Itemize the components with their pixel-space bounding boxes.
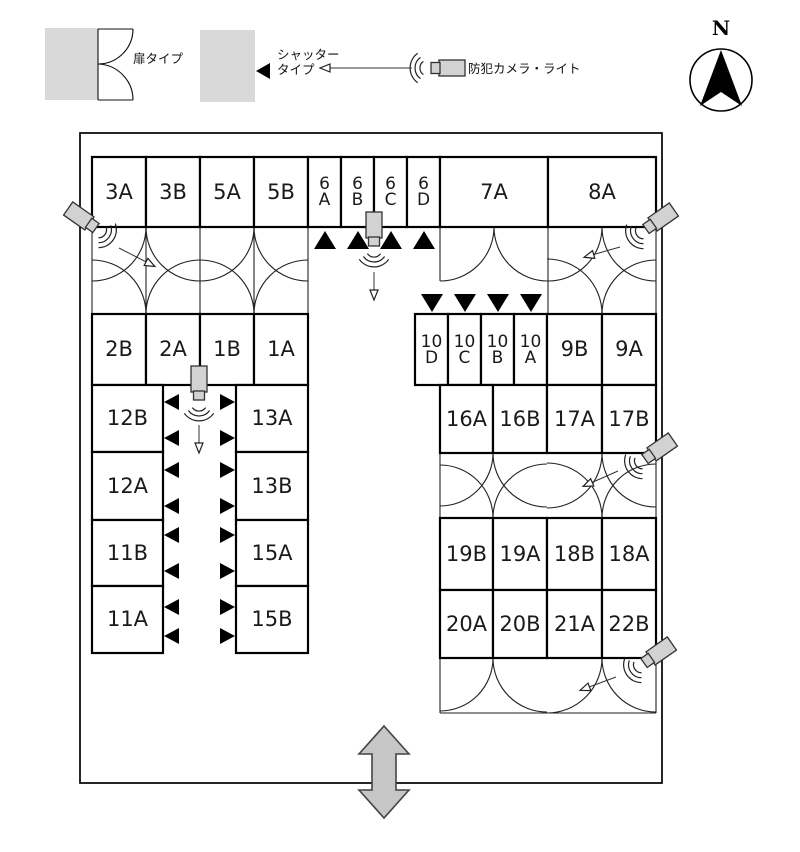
- shutter-triangle-down-icon: [520, 294, 542, 312]
- unit-rect-20B: [493, 590, 547, 658]
- unit-rect-2B: [92, 314, 146, 385]
- unit-rect-22B: [602, 590, 656, 658]
- unit-rect-15B: [236, 586, 308, 653]
- shutter-triangle-left-icon: [164, 498, 179, 514]
- unit-rect-6D: [407, 157, 440, 227]
- camera-view-arrow: [585, 247, 620, 257]
- camera-view-arrow: [584, 471, 618, 486]
- shutter-triangle-left-icon: [164, 527, 179, 543]
- door-type-icon: [45, 28, 133, 100]
- shutter-triangle-left-icon: [164, 394, 179, 410]
- floor-plan-svg: [0, 0, 800, 852]
- shutter-triangle-left-icon: [164, 563, 179, 579]
- entrance-arrow-icon: [359, 726, 409, 818]
- shutter-triangle-down-icon: [421, 294, 443, 312]
- shutter-triangle-right-icon: [220, 628, 235, 644]
- shutter-triangle-right-icon: [220, 394, 235, 410]
- unit-rect-5A: [200, 157, 254, 227]
- shutter-triangle-up-icon: [413, 231, 435, 249]
- unit-rect-1A: [254, 314, 308, 385]
- unit-rect-10C: [448, 314, 481, 385]
- unit-rect-18A: [602, 518, 656, 590]
- shutter-triangle-right-icon: [220, 498, 235, 514]
- shutter-triangle-left-icon: [164, 599, 179, 615]
- unit-rect-11B: [92, 520, 163, 586]
- shutter-triangle-left-icon: [164, 462, 179, 478]
- unit-rect-19B: [440, 518, 493, 590]
- shutter-triangle-right-icon: [220, 599, 235, 615]
- shutter-triangle-left-icon: [164, 628, 179, 644]
- unit-rect-15A: [236, 520, 308, 586]
- floor-plan-page: 扉タイプ シャッター タイプ 防犯カメラ・ライト N 3A3B5A5B6 A6 …: [0, 0, 800, 852]
- unit-rect-6A: [308, 157, 341, 227]
- unit-rect-8A: [548, 157, 656, 227]
- unit-rect-9A: [602, 314, 656, 385]
- unit-rect-11A: [92, 586, 163, 653]
- unit-rect-18B: [547, 518, 602, 590]
- compass-icon: [690, 49, 752, 111]
- unit-rect-3B: [146, 157, 200, 227]
- unit-rect-16B: [493, 385, 547, 453]
- unit-rect-10B: [481, 314, 514, 385]
- unit-rect-10D: [415, 314, 448, 385]
- shutter-triangle-down-icon: [454, 294, 476, 312]
- unit-rect-13B: [236, 452, 308, 520]
- camera-view-arrow: [119, 248, 154, 266]
- unit-rect-12A: [92, 452, 163, 520]
- shutter-triangle-right-icon: [220, 430, 235, 446]
- unit-rect-7A: [440, 157, 548, 227]
- unit-rect-19A: [493, 518, 547, 590]
- unit-rect-1B: [200, 314, 254, 385]
- unit-rect-5B: [254, 157, 308, 227]
- unit-rect-9B: [547, 314, 602, 385]
- shutter-triangle-up-icon: [314, 231, 336, 249]
- unit-rect-17B: [602, 385, 656, 453]
- unit-rect-16A: [440, 385, 493, 453]
- shutter-triangle-down-icon: [487, 294, 509, 312]
- shutter-type-icon: [200, 30, 270, 102]
- unit-rect-21A: [547, 590, 602, 658]
- shutter-triangle-up-icon: [380, 231, 402, 249]
- security-camera-icon: [410, 53, 465, 82]
- unit-rect-13A: [236, 385, 308, 452]
- shutter-triangle-left-icon: [164, 430, 179, 446]
- shutter-triangle-right-icon: [220, 563, 235, 579]
- shutter-triangle-right-icon: [220, 527, 235, 543]
- unit-rect-10A: [514, 314, 547, 385]
- shutter-triangle-right-icon: [220, 462, 235, 478]
- unit-rect-12B: [92, 385, 163, 452]
- unit-rect-17A: [547, 385, 602, 453]
- unit-rect-20A: [440, 590, 493, 658]
- unit-rect-3A: [92, 157, 146, 227]
